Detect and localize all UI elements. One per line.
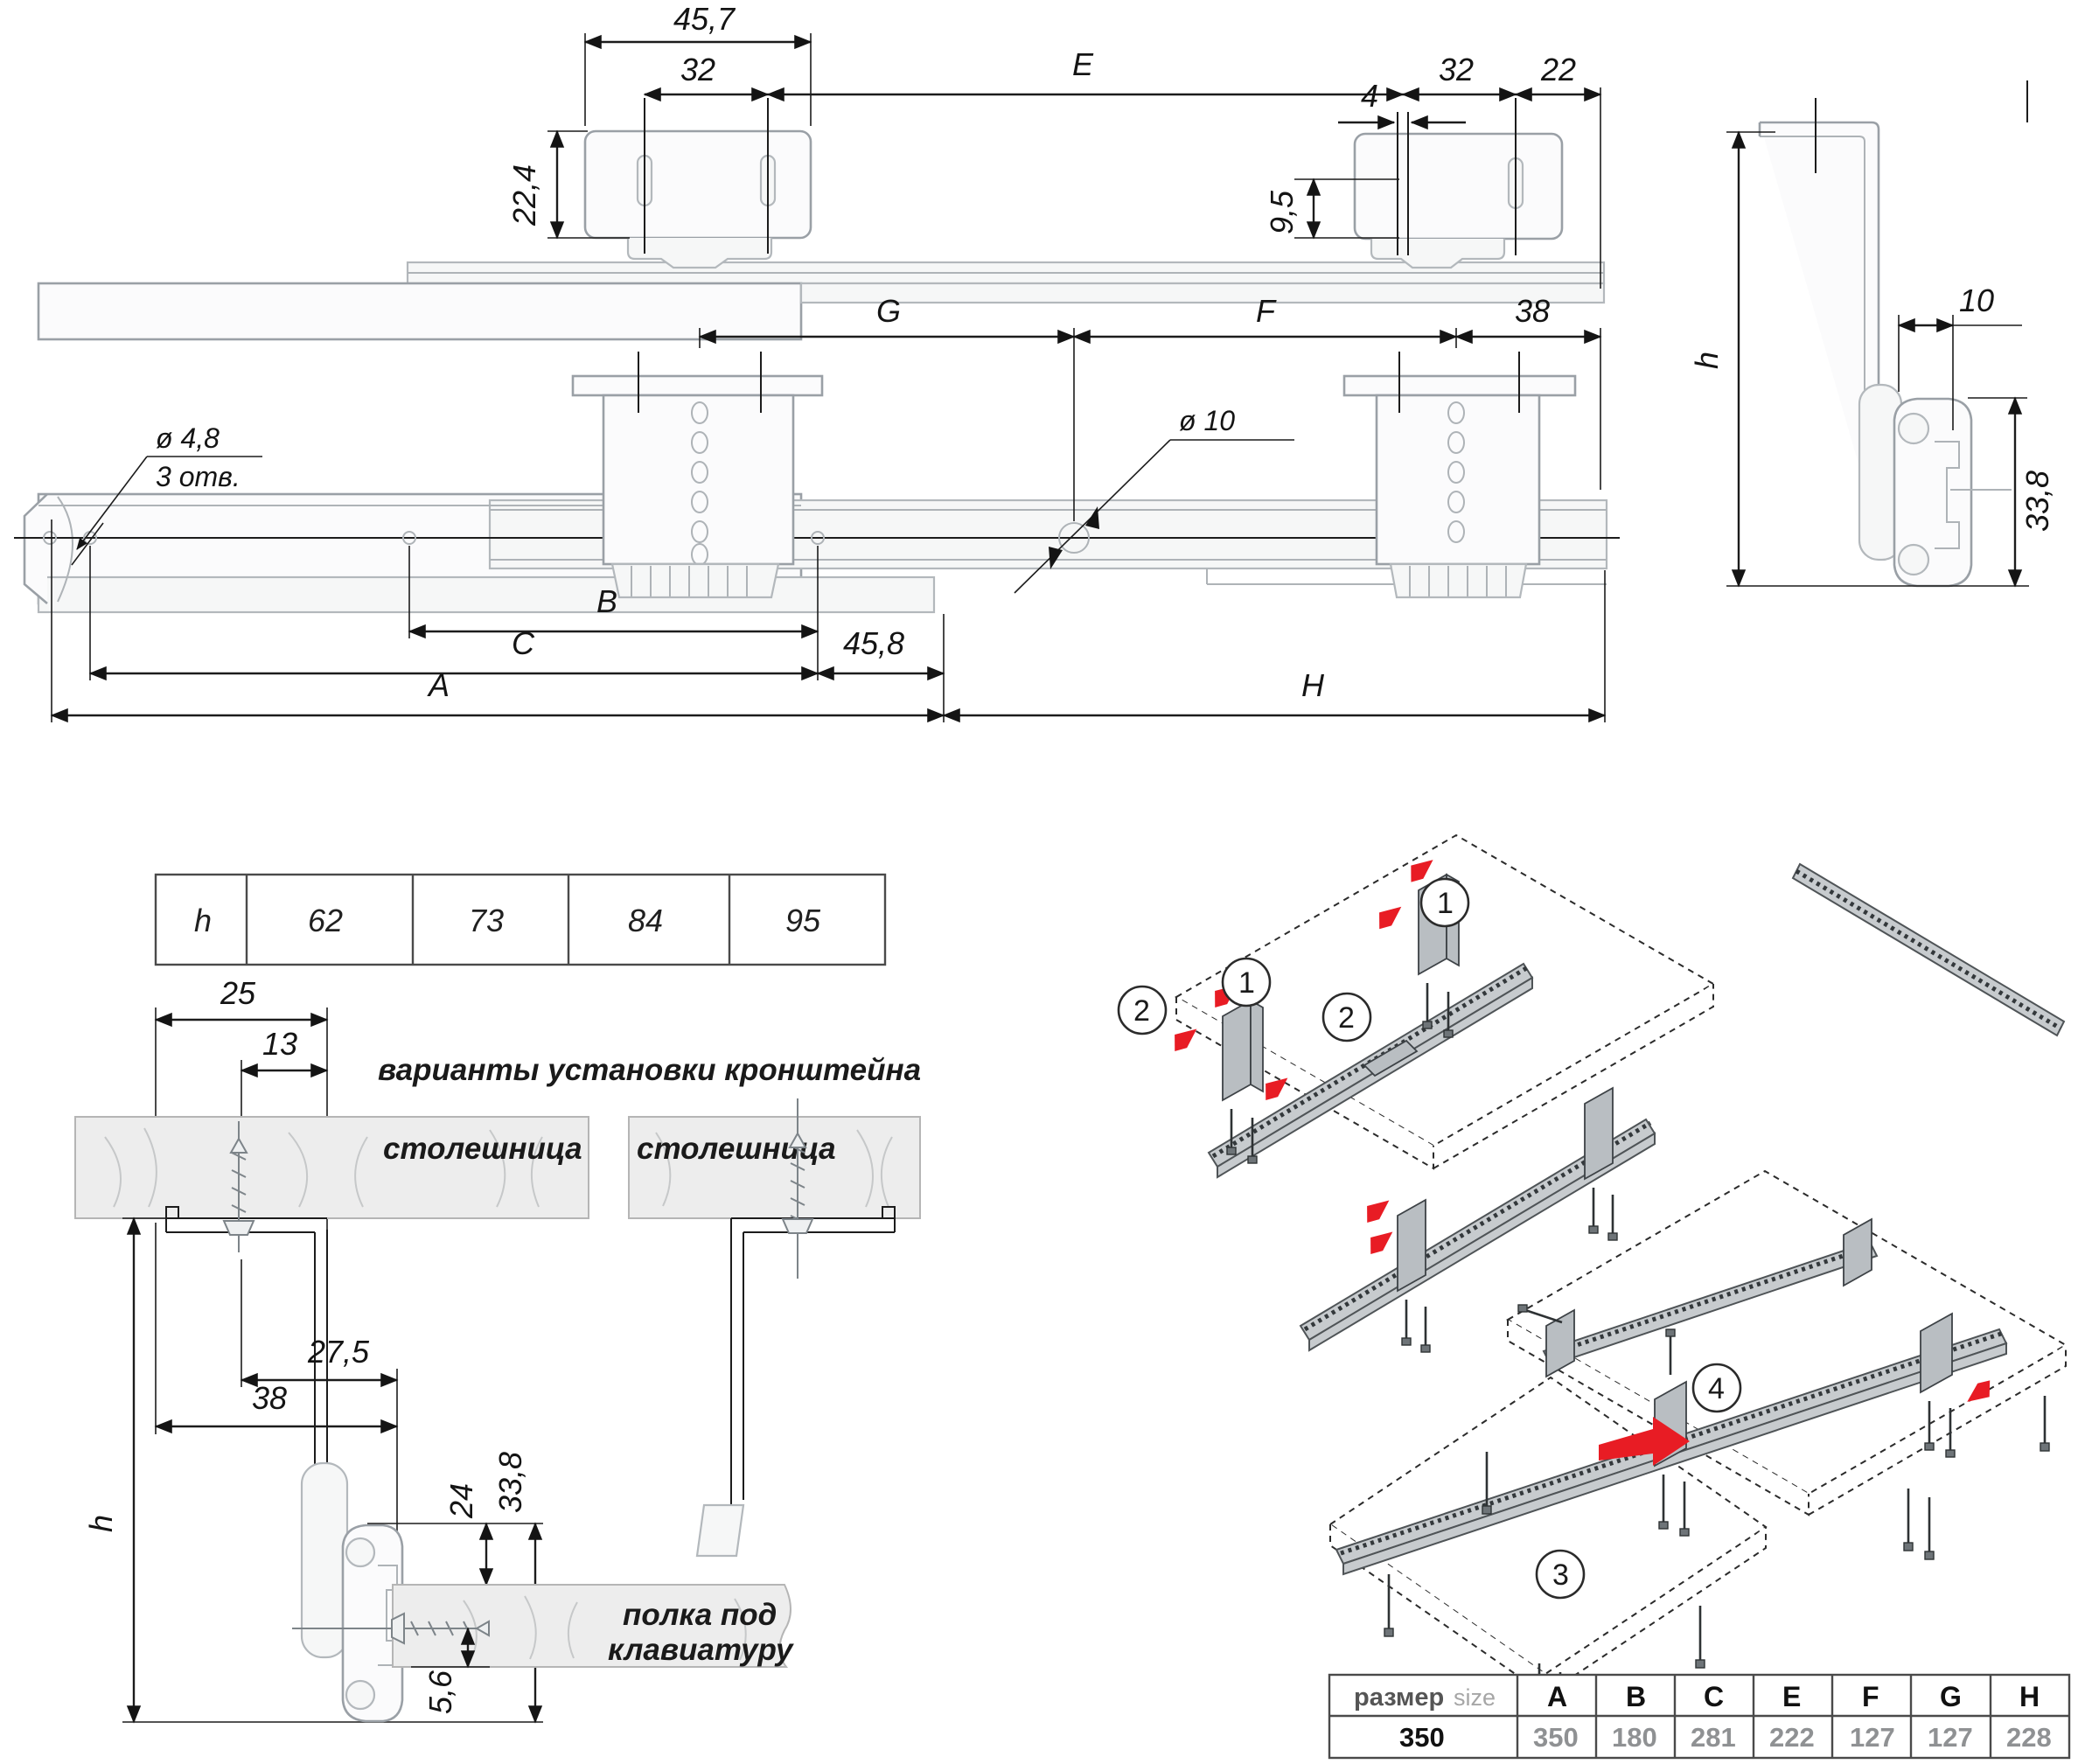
plan-view: G F 38 ø 4,8 3 отв. ø 10 [14, 293, 1620, 722]
dia-4-8-label: ø 4,8 [156, 422, 220, 454]
dim-F-label: F [1256, 293, 1277, 329]
svg-text:127: 127 [1928, 1722, 1973, 1753]
dim-13-label: 13 [262, 1026, 297, 1062]
dim-h-install-label: h [83, 1515, 119, 1532]
h-table-value: 73 [469, 903, 504, 938]
bracket-iso [1585, 1088, 1617, 1240]
ball-top [1899, 414, 1928, 443]
svg-text:C: C [1704, 1681, 1724, 1712]
svg-text:281: 281 [1691, 1722, 1736, 1753]
dim-45-8-label: 45,8 [843, 625, 904, 661]
dia-4-8-qty-label: 3 отв. [156, 461, 241, 492]
install-variants: варианты установки кронштейна 25 13 стол… [75, 975, 921, 1722]
h-table-label: h [194, 903, 212, 938]
dim-4-label: 4 [1361, 78, 1378, 114]
svg-text:1: 1 [1238, 966, 1255, 1000]
dim-38-label: 38 [1515, 293, 1550, 329]
bracket-foot-tab [697, 1505, 743, 1556]
dim-22-label: 22 [1540, 52, 1576, 87]
outer-rail-lip [38, 577, 934, 612]
size-table-header-en: size [1454, 1684, 1496, 1711]
dim-h-label: h [1689, 352, 1725, 369]
bracket-iso [1398, 1200, 1430, 1352]
dim-C-label: C [512, 625, 535, 661]
side-view: h 10 33,8 [1689, 80, 2055, 586]
shelf-label-line1: полка под [623, 1598, 777, 1632]
dim-32-right-label: 32 [1439, 52, 1474, 87]
h-table-value: 62 [308, 903, 343, 938]
svg-text:2: 2 [1133, 994, 1150, 1028]
dim-32-left-label: 32 [680, 52, 715, 87]
tabletop-right: столешница [629, 1117, 920, 1218]
size-table-row-name: 350 [1399, 1722, 1445, 1753]
top-view: 45,7 32 E 32 22 22,4 4 [38, 1, 1604, 339]
h-table-value: 84 [628, 903, 663, 938]
slide-cross-section-install [302, 1463, 402, 1721]
drawing-sheet: 45,7 32 E 32 22 22,4 4 [0, 0, 2078, 1764]
h-table: h 62 73 84 95 [156, 875, 885, 965]
svg-text:1: 1 [1437, 887, 1454, 920]
dia-10-label: ø 10 [1179, 405, 1235, 436]
dim-45-7-label: 45,7 [673, 1, 736, 37]
shelf-label-line2: клавиатуру [608, 1633, 794, 1667]
dim-A-label: A [427, 667, 450, 703]
rail-end-cap [24, 494, 47, 603]
svg-text:2: 2 [1338, 1001, 1355, 1035]
middle-bracket-front [573, 352, 822, 597]
dim-22-4-label: 22,4 [506, 164, 542, 227]
dim-H-label: H [1301, 667, 1325, 703]
inner-rail-top [801, 283, 1604, 303]
slide-rail-iso [1793, 864, 2064, 1035]
dim-33-8-label: 33,8 [2019, 471, 2055, 532]
dim-24-label: 24 [443, 1483, 479, 1519]
svg-text:180: 180 [1612, 1722, 1657, 1753]
dim-B-label: B [596, 583, 617, 619]
svg-text:E: E [1782, 1681, 1801, 1712]
svg-text:127: 127 [1850, 1722, 1895, 1753]
assembly-diagram: 1 2 1 2 3 4 [1119, 835, 2066, 1734]
dim-E-label: E [1072, 46, 1094, 82]
dim-5-6-label: 5,6 [422, 1670, 458, 1714]
size-table-header-ru: размер [1354, 1684, 1444, 1712]
dim-10-label: 10 [1959, 282, 1994, 318]
tabletop-left-label: столешница [383, 1132, 582, 1166]
h-table-value: 95 [785, 903, 821, 938]
dim-27-5-label: 27,5 [307, 1334, 370, 1370]
install-title: варианты установки кронштейна [378, 1053, 921, 1087]
svg-text:G: G [1940, 1681, 1962, 1712]
dim-33-8-side: 33,8 [1968, 398, 2055, 586]
dim-25-label: 25 [220, 975, 256, 1011]
tabletop-right-label: столешница [637, 1132, 836, 1166]
size-table: размер size A B C E F G H 350 350 180 28… [1329, 1675, 2069, 1758]
dim-38-install-label: 38 [252, 1380, 287, 1416]
svg-text:3: 3 [1552, 1558, 1569, 1592]
svg-text:F: F [1862, 1681, 1879, 1712]
left-bracket-top-view [585, 98, 811, 268]
svg-text:222: 222 [1769, 1722, 1815, 1753]
dim-G-label: G [876, 293, 901, 329]
outer-rail-top [38, 283, 801, 339]
svg-text:4: 4 [1708, 1372, 1725, 1405]
dim-9-5-label: 9,5 [1264, 190, 1300, 234]
tabletop-left: столешница [75, 1117, 589, 1218]
dim-33-8-install-label: 33,8 [492, 1452, 528, 1513]
svg-text:H: H [2019, 1681, 2040, 1712]
svg-text:350: 350 [1533, 1722, 1579, 1753]
ball-bottom [1899, 545, 1928, 575]
svg-text:B: B [1626, 1681, 1646, 1712]
svg-text:228: 228 [2006, 1722, 2052, 1753]
keyboard-shelf: полка под клавиатуру [393, 1585, 794, 1667]
technical-drawing: 45,7 32 E 32 22 22,4 4 [0, 0, 2078, 1764]
svg-text:A: A [1547, 1681, 1567, 1712]
